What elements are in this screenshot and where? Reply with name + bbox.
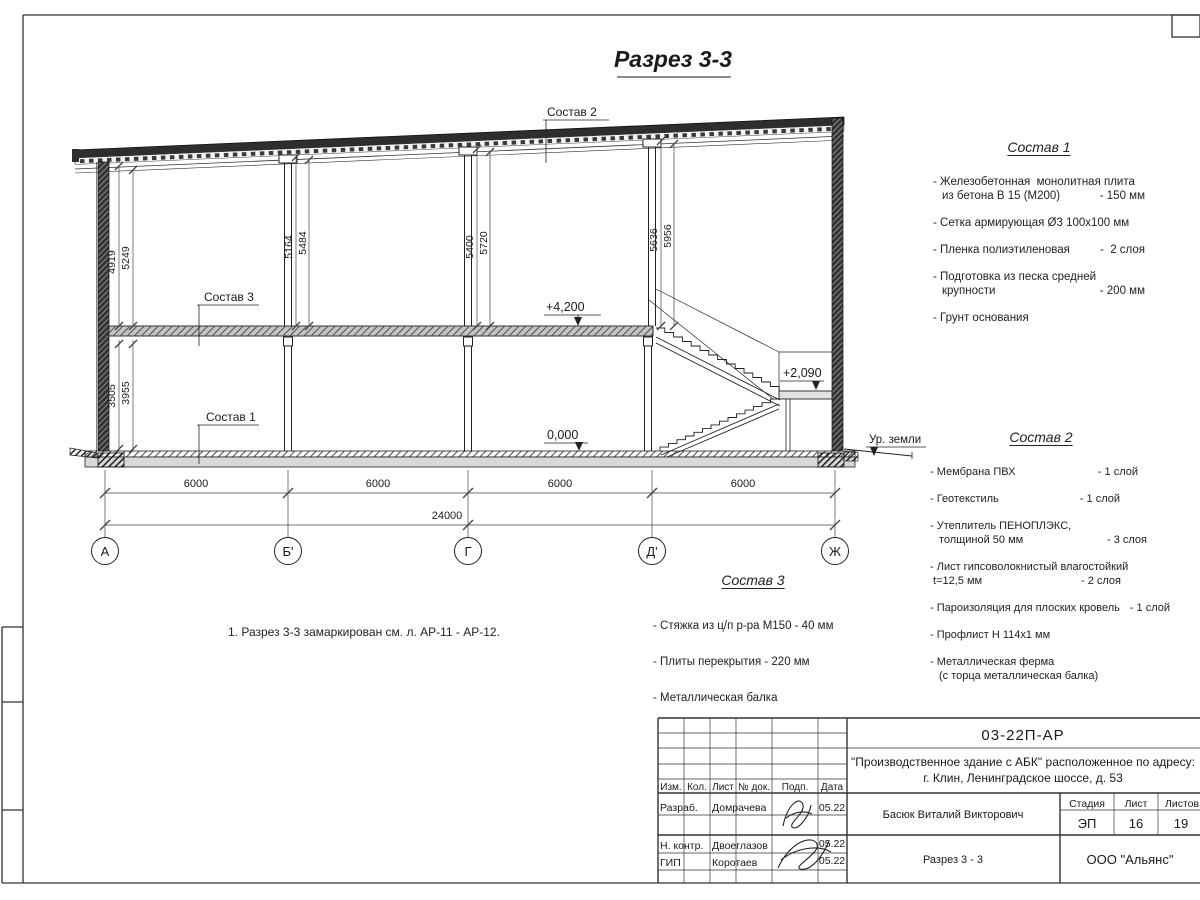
foundation-left xyxy=(98,453,124,467)
roof xyxy=(72,117,844,173)
drawing-title: Разрез 3-3 xyxy=(614,46,732,77)
name-cell: Двоеглазов xyxy=(712,840,768,852)
project-name-line2: г. Клин, Ленинградское шоссе, д. 53 xyxy=(923,771,1123,785)
format-stamp-box xyxy=(1172,15,1200,37)
list-item: - Железобетонная монолитная плита из бет… xyxy=(933,175,1145,203)
stair-landing xyxy=(779,391,832,399)
column-base-joint xyxy=(644,337,653,346)
sheet-value: 16 xyxy=(1129,816,1143,831)
span-dim: 6000 xyxy=(731,478,755,490)
chief-name: Басюк Виталий Викторович xyxy=(883,809,1024,821)
axis-label: А xyxy=(101,544,110,559)
list-item: - Грунт основания xyxy=(933,311,1145,325)
role-cell: Разраб. xyxy=(660,802,698,814)
leader-label-sostav2: Состав 2 xyxy=(547,105,597,119)
dim-label: 3505 xyxy=(106,384,118,408)
elevation-marks: +4,200 0,000 +2,090 Ур. земли xyxy=(544,300,926,456)
sheet-title: Разрез 3 - 3 xyxy=(923,854,983,866)
foundation-right xyxy=(818,453,844,467)
ground-level-label: Ур. земли xyxy=(869,434,921,446)
column-base-joint xyxy=(284,337,293,346)
list-item: - Металлическая ферма (с торца металличе… xyxy=(930,655,1170,683)
stage-value: ЭП xyxy=(1078,816,1097,831)
date-cell: 05.22 xyxy=(819,855,845,867)
role-cell: ГИП xyxy=(660,857,681,869)
axis-bubbles: А Б' Г Д' Ж xyxy=(92,538,849,565)
composition-list-1: Состав 1 - Железобетонная монолитная пли… xyxy=(933,140,1145,338)
list-item: - Сетка армирующая Ø3 100х100 мм xyxy=(933,216,1145,230)
title-block: 03-22П-АР "Производственное здание с АБК… xyxy=(658,718,1200,883)
list-item: - Лист гипсоволокнистый влагостойкий t=1… xyxy=(930,560,1170,588)
dim-label: 5484 xyxy=(297,231,309,255)
date-cell: 05.22 xyxy=(819,838,845,850)
dim-label: 5400 xyxy=(464,235,476,259)
list-item: - Металлическая балка xyxy=(653,691,853,705)
walls xyxy=(97,118,844,451)
lower-flight-steps xyxy=(660,399,779,451)
stage-label: Стадия xyxy=(1069,798,1105,810)
total-dim: 24000 xyxy=(432,510,463,522)
signature-icon xyxy=(783,801,812,828)
column-base-joint xyxy=(464,337,473,346)
col-header-podp: Подп. xyxy=(782,782,809,793)
list-item: - Стяжка из ц/п р-ра М150 - 40 мм xyxy=(653,619,853,633)
vertical-dimensions: 4919 5249 5164 5484 5400 5720 5636 5956 … xyxy=(106,137,678,453)
sheets-value: 19 xyxy=(1174,816,1188,831)
name-cell: Коротаев xyxy=(712,857,758,869)
span-dim: 6000 xyxy=(548,478,572,490)
dim-label: 5249 xyxy=(120,246,132,270)
dim-label: 5164 xyxy=(283,235,295,259)
span-dim: 6000 xyxy=(184,478,208,490)
col-header-izm: Изм. xyxy=(660,782,681,793)
roof-edge-gutter xyxy=(72,149,79,162)
list-item: - Профлист Н 114х1 мм xyxy=(930,628,1170,642)
leader-label-sostav1: Состав 1 xyxy=(206,410,256,424)
sheet-label: Лист xyxy=(1125,798,1148,810)
page-title: Разрез 3-3 xyxy=(614,46,732,72)
blind-area-left xyxy=(70,448,97,458)
floor-slab xyxy=(109,326,653,336)
axis-label: Б' xyxy=(282,544,293,559)
list-item: - Мембрана ПВХ- 1 слой xyxy=(930,465,1170,479)
axis-label: Г xyxy=(464,544,471,559)
col-header-data: Дата xyxy=(821,782,844,793)
sheets-label: Листов xyxy=(1165,798,1200,810)
columns xyxy=(279,139,661,451)
drawing-note: 1. Разрез 3-3 замаркирован см. л. АР-11 … xyxy=(228,625,500,639)
list-item: - Подготовка из песка средней крупности-… xyxy=(933,270,1145,298)
role-cell: Н. контр. xyxy=(660,840,703,852)
upper-flight-steps xyxy=(656,328,779,391)
dim-label: 5720 xyxy=(478,231,490,255)
axis-label: Ж xyxy=(829,544,841,559)
composition-title: Состав 3 xyxy=(653,573,853,587)
leader-label-sostav3: Состав 3 xyxy=(204,290,254,304)
dim-label: 4919 xyxy=(106,250,118,274)
axis-label: Д' xyxy=(646,544,657,559)
elevation-label: +4,200 xyxy=(546,300,585,314)
span-dim: 6000 xyxy=(366,478,390,490)
col-header-ndok: № док. xyxy=(738,782,770,793)
date-cell: 05.22 xyxy=(819,802,845,814)
name-cell: Домрачева xyxy=(712,802,767,814)
dim-label: 3955 xyxy=(120,381,132,405)
composition-list-3: Состав 3 - Стяжка из ц/п р-ра М150 - 40 … xyxy=(653,573,853,718)
list-item: - Пароизоляция для плоских кровель- 1 сл… xyxy=(930,601,1170,615)
composition-list-2: Состав 2 - Мембрана ПВХ- 1 слой - Геотек… xyxy=(930,430,1170,696)
doc-number: 03-22П-АР xyxy=(981,727,1064,744)
drawing-sheet: Разрез 3-3 xyxy=(0,0,1200,900)
list-item: - Утеплитель ПЕНОПЛЭКС, толщиной 50 мм- … xyxy=(930,519,1170,547)
composition-title: Состав 1 xyxy=(933,140,1145,154)
right-wall xyxy=(832,118,843,451)
list-item: - Геотекстиль- 1 слой xyxy=(930,492,1170,506)
col-header-list: Лист xyxy=(712,782,734,793)
list-item: - Пленка полиэтиленовая- 2 слоя xyxy=(933,243,1145,257)
horizontal-dimensions: 6000 6000 6000 6000 24000 xyxy=(100,470,840,537)
dim-label: 5636 xyxy=(648,228,660,252)
col-header-kol: Кол. xyxy=(687,782,707,793)
elevation-label: 0,000 xyxy=(547,428,578,442)
dim-label: 5956 xyxy=(662,224,674,248)
project-name-line1: "Производственное здание с АБК" располож… xyxy=(851,755,1195,769)
list-item: - Плиты перекрытия - 220 мм xyxy=(653,655,853,669)
composition-title: Состав 2 xyxy=(930,430,1152,444)
company-name: ООО "Альянс" xyxy=(1087,852,1174,867)
elevation-label: +2,090 xyxy=(783,366,822,380)
